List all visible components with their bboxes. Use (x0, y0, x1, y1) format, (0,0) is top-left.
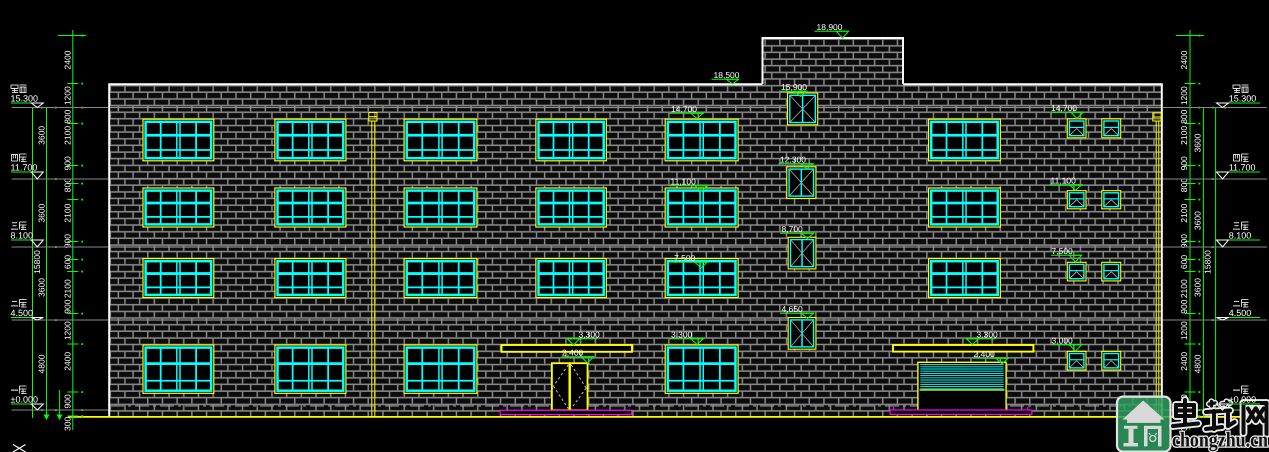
svg-text:2100: 2100 (1179, 126, 1189, 145)
svg-text:chongzhu.cn: chongzhu.cn (1172, 428, 1268, 452)
svg-text:1200: 1200 (63, 321, 73, 340)
svg-text:3,300: 3,300 (579, 330, 601, 340)
svg-text:15,900: 15,900 (781, 82, 807, 92)
svg-text:800: 800 (1179, 178, 1189, 192)
svg-text:800: 800 (1179, 109, 1189, 123)
svg-text:800: 800 (63, 178, 73, 192)
svg-text:14,700: 14,700 (671, 104, 697, 114)
svg-text:3600: 3600 (1193, 278, 1203, 297)
svg-text:15.300: 15.300 (11, 94, 39, 104)
svg-text:15.300: 15.300 (1229, 94, 1257, 104)
svg-text:11.700: 11.700 (11, 163, 38, 173)
svg-text:2100: 2100 (63, 203, 73, 222)
svg-text:±0.000: ±0.000 (11, 395, 38, 405)
svg-text:11.700: 11.700 (1229, 163, 1256, 173)
svg-text:4800: 4800 (1193, 354, 1203, 373)
svg-text:3,000: 3,000 (1052, 336, 1074, 346)
svg-text:1200: 1200 (1179, 321, 1189, 340)
svg-text:900: 900 (1179, 299, 1189, 313)
svg-text:2100: 2100 (63, 126, 73, 145)
svg-text:900: 900 (63, 394, 73, 408)
svg-text:2,400: 2,400 (562, 348, 584, 358)
svg-text:900: 900 (1179, 234, 1189, 248)
svg-text:18,500: 18,500 (714, 70, 740, 80)
svg-text:11,100: 11,100 (1051, 176, 1077, 186)
svg-text:800: 800 (63, 109, 73, 123)
svg-text:3600: 3600 (37, 278, 47, 297)
svg-text:7,500: 7,500 (674, 253, 696, 263)
svg-text:2100: 2100 (1179, 203, 1189, 222)
svg-text:600: 600 (1179, 255, 1189, 269)
svg-text:1200: 1200 (1179, 86, 1189, 105)
svg-text:900: 900 (63, 234, 73, 248)
svg-text:14,700: 14,700 (1051, 103, 1077, 113)
svg-text:15800: 15800 (32, 250, 42, 274)
svg-text:8,700: 8,700 (782, 224, 804, 234)
svg-text:1200: 1200 (63, 86, 73, 105)
svg-text:3,300: 3,300 (671, 330, 693, 340)
svg-text:2,400: 2,400 (974, 349, 996, 359)
svg-text:2400: 2400 (63, 50, 73, 69)
svg-text:2100: 2100 (1179, 279, 1189, 298)
svg-text:3600: 3600 (37, 126, 47, 145)
svg-text:3600: 3600 (1193, 211, 1203, 230)
svg-text:600: 600 (63, 255, 73, 269)
svg-text:8.100: 8.100 (11, 231, 34, 241)
svg-text:2400: 2400 (1179, 50, 1189, 69)
svg-text:900: 900 (1179, 156, 1189, 170)
svg-text:4.500: 4.500 (11, 308, 34, 318)
svg-text:8.100: 8.100 (1229, 231, 1252, 241)
svg-text:4,650: 4,650 (782, 304, 804, 314)
svg-text:2400: 2400 (1179, 352, 1189, 371)
svg-text:15800: 15800 (1203, 250, 1213, 274)
svg-text:12,300: 12,300 (780, 155, 806, 165)
svg-text:3,300: 3,300 (977, 330, 999, 340)
svg-text:3600: 3600 (1193, 133, 1203, 152)
svg-text:4800: 4800 (37, 354, 47, 373)
svg-text:11,100: 11,100 (671, 177, 697, 187)
svg-text:900: 900 (63, 299, 73, 313)
svg-text:2400: 2400 (63, 352, 73, 371)
svg-text:7,500: 7,500 (1052, 246, 1074, 256)
svg-text:18,900: 18,900 (817, 22, 843, 32)
svg-text:±0.000: ±0.000 (1229, 395, 1256, 405)
svg-text:4.500: 4.500 (1229, 308, 1252, 318)
svg-text:2100: 2100 (63, 279, 73, 298)
svg-text:900: 900 (63, 156, 73, 170)
svg-text:300: 300 (63, 417, 73, 431)
svg-text:3600: 3600 (37, 203, 47, 222)
